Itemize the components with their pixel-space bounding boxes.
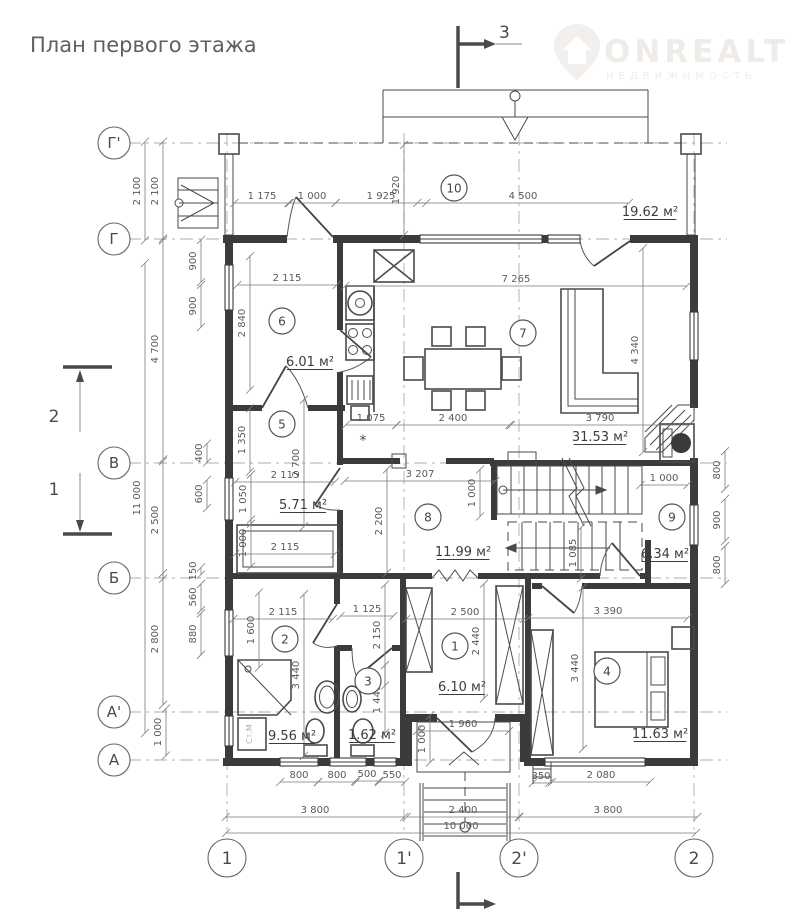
room-number: 2	[281, 633, 289, 647]
svg-text:3 440: 3 440	[570, 654, 581, 683]
window	[545, 758, 645, 766]
window	[330, 758, 366, 766]
axis-label: А	[109, 751, 120, 769]
svg-text:560: 560	[188, 587, 199, 606]
window	[374, 758, 396, 766]
window	[548, 235, 580, 243]
window	[225, 478, 233, 520]
svg-text:2 115: 2 115	[269, 607, 298, 618]
window	[420, 235, 542, 243]
svg-text:500: 500	[357, 769, 376, 780]
axis-label: 2	[689, 849, 700, 869]
svg-text:2 500: 2 500	[451, 607, 480, 618]
svg-text:800: 800	[712, 555, 723, 574]
svg-text:1 960: 1 960	[449, 719, 478, 730]
svg-text:800: 800	[289, 770, 308, 781]
svg-text:4 340: 4 340	[630, 336, 641, 365]
room-number: 7	[519, 327, 527, 341]
room-number: 5	[278, 418, 286, 432]
room-area: 6.10 м²	[438, 680, 486, 695]
room-area: 6.01 м²	[286, 355, 334, 370]
svg-text:350: 350	[531, 771, 550, 782]
room-area: 19.62 м²	[622, 205, 678, 220]
svg-text:1 085: 1 085	[568, 539, 579, 568]
axis-label: 1	[222, 849, 233, 869]
svg-text:2 100: 2 100	[150, 177, 161, 206]
svg-text:3 207: 3 207	[406, 469, 435, 480]
svg-text:3 800: 3 800	[301, 805, 330, 816]
svg-text:3 800: 3 800	[594, 805, 623, 816]
svg-text:900: 900	[712, 510, 723, 529]
svg-text:550: 550	[382, 770, 401, 781]
axis-label: Г'	[107, 134, 120, 152]
section-label-2: 2	[49, 407, 60, 427]
svg-text:3 390: 3 390	[594, 606, 623, 617]
room-number: 8	[424, 511, 432, 525]
svg-text:800: 800	[712, 460, 723, 479]
svg-text:2 150: 2 150	[372, 621, 383, 650]
svg-text:4 500: 4 500	[509, 191, 538, 202]
svg-text:1 000: 1 000	[467, 479, 478, 508]
svg-text:1 920: 1 920	[391, 176, 402, 205]
svg-text:150: 150	[188, 561, 199, 580]
axis-label: В	[109, 454, 119, 472]
room-area: 5.71 м²	[279, 498, 327, 513]
svg-text:10 000: 10 000	[444, 821, 479, 832]
svg-text:2 100: 2 100	[132, 177, 143, 206]
floor-plan-page: { "title": "План первого этажа", "waterm…	[0, 0, 801, 910]
svg-text:800: 800	[327, 770, 346, 781]
svg-text:2 840: 2 840	[237, 309, 248, 338]
svg-text:1 050: 1 050	[238, 485, 249, 514]
svg-text:2 500: 2 500	[150, 506, 161, 535]
svg-text:2 200: 2 200	[374, 507, 385, 536]
annotation: *	[360, 433, 367, 449]
room-number: 9	[668, 511, 676, 525]
svg-text:7 265: 7 265	[502, 274, 531, 285]
axis-label: Б	[109, 569, 119, 587]
svg-text:1 000: 1 000	[417, 725, 428, 754]
section-label-3: 3	[499, 23, 510, 43]
window	[225, 265, 233, 310]
window	[690, 312, 698, 360]
window	[225, 610, 233, 656]
room-number: 6	[278, 315, 286, 329]
room-area: 31.53 м²	[572, 430, 628, 445]
axis-label: А'	[107, 703, 121, 721]
svg-text:1 125: 1 125	[353, 604, 382, 615]
svg-text:3 790: 3 790	[586, 413, 615, 424]
svg-text:600: 600	[194, 484, 205, 503]
axis-label: Г	[109, 230, 118, 248]
svg-text:900: 900	[188, 296, 199, 315]
axis-label: 1'	[396, 849, 412, 869]
svg-text:2 080: 2 080	[587, 770, 616, 781]
brand-name: ONREALT	[604, 34, 789, 70]
svg-text:1 600: 1 600	[246, 616, 257, 645]
svg-text:400: 400	[194, 443, 205, 462]
room-area: 1.62 м²	[348, 728, 396, 743]
svg-text:2 700: 2 700	[291, 449, 302, 478]
svg-text:2 400: 2 400	[449, 805, 478, 816]
window	[225, 716, 233, 746]
svg-text:1 175: 1 175	[248, 191, 277, 202]
svg-text:2 115: 2 115	[271, 542, 300, 553]
svg-text:2 400: 2 400	[439, 413, 468, 424]
svg-text:1 350: 1 350	[237, 426, 248, 455]
room-area: 11.99 м²	[435, 545, 491, 560]
window	[690, 505, 698, 545]
room-area: 6.34 м²	[641, 547, 689, 562]
room-number: 3	[364, 675, 372, 689]
room-number: 4	[603, 665, 611, 679]
annotation: Ст.М	[245, 724, 254, 744]
svg-text:900: 900	[188, 251, 199, 270]
svg-text:1 000: 1 000	[650, 473, 679, 484]
svg-text:2 800: 2 800	[150, 625, 161, 654]
svg-text:3 440: 3 440	[291, 661, 302, 690]
svg-text:1 075: 1 075	[357, 413, 386, 424]
window	[280, 758, 318, 766]
svg-text:1 000: 1 000	[153, 718, 164, 747]
svg-text:11 000: 11 000	[132, 481, 143, 516]
page-title: План первого этажа	[30, 33, 257, 57]
svg-text:2 440: 2 440	[471, 627, 482, 656]
svg-text:880: 880	[188, 624, 199, 643]
svg-text:1 000: 1 000	[298, 191, 327, 202]
room-area: 9.56 м²	[268, 729, 316, 744]
svg-text:2 115: 2 115	[273, 273, 302, 284]
axis-label: 2'	[511, 849, 527, 869]
section-label-1: 1	[49, 480, 60, 500]
svg-text:4 700: 4 700	[150, 335, 161, 364]
room-number: 1	[451, 640, 459, 654]
brand-subtitle: НЕДВИЖИМОСТЬ	[606, 71, 757, 82]
room-area: 11.63 м²	[632, 727, 688, 742]
room-number: 10	[446, 182, 461, 196]
svg-text:1 000: 1 000	[238, 529, 249, 558]
